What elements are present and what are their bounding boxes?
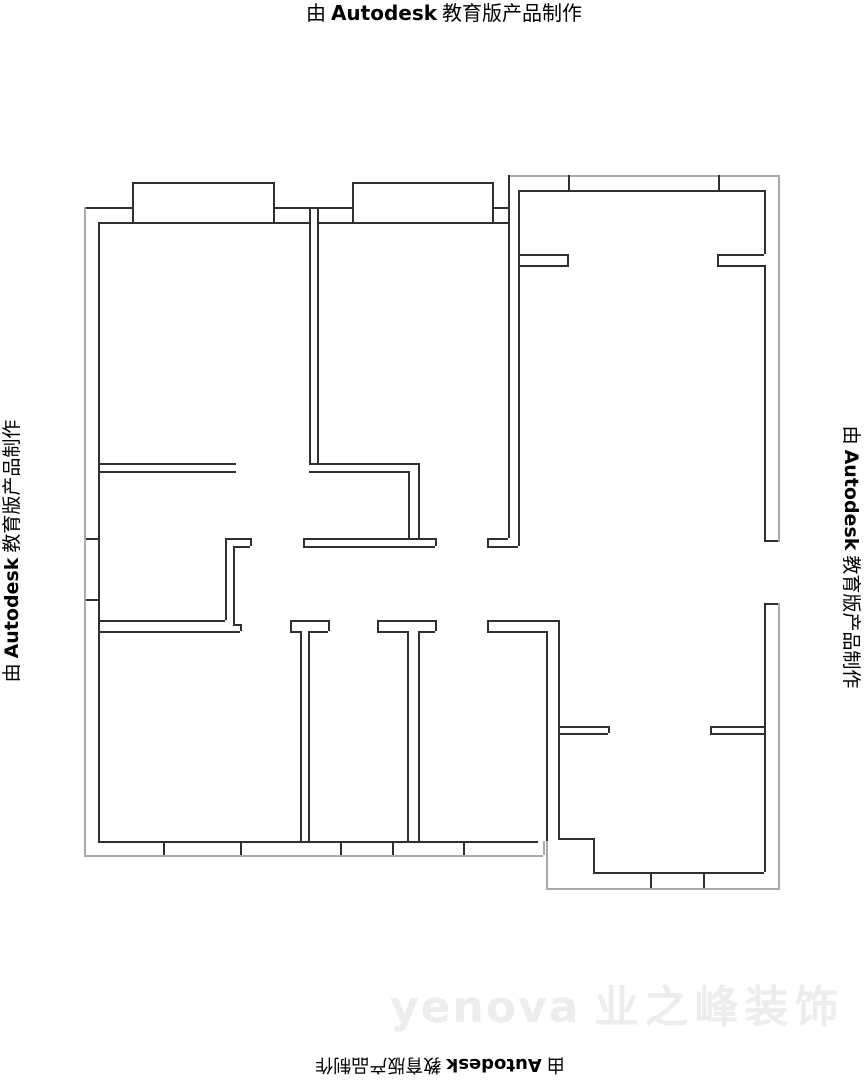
wall-segment: [290, 620, 328, 622]
wall-segment: [233, 546, 235, 624]
wall-segment: [593, 838, 595, 872]
wall-segment: [309, 471, 408, 473]
wall-segment: [546, 631, 548, 841]
wall-segment: [764, 603, 766, 872]
wall-segment: [132, 182, 134, 222]
wall-segment: [303, 546, 435, 548]
wall-segment: [418, 463, 420, 538]
outer-wall-segment: [84, 207, 86, 857]
wall-segment: [487, 620, 558, 622]
wall-segment: [487, 538, 508, 540]
wall-segment: [487, 546, 518, 548]
wall-segment: [487, 538, 489, 546]
wall-segment: [377, 620, 435, 622]
wall-segment: [240, 841, 242, 855]
wall-segment: [710, 726, 764, 728]
wall-segment: [518, 190, 520, 546]
wall-segment: [98, 620, 225, 622]
wall-segment: [98, 631, 240, 633]
wall-segment: [328, 620, 330, 631]
outer-wall-segment: [778, 603, 780, 888]
wall-segment: [418, 631, 435, 633]
wall-segment: [703, 872, 705, 888]
wall-segment: [240, 624, 242, 631]
wall-segment: [98, 222, 100, 841]
wall-segment: [392, 841, 394, 855]
wall-segment: [487, 631, 546, 633]
wall-segment: [764, 265, 766, 540]
wall-segment: [309, 463, 418, 465]
wall-segment: [233, 546, 250, 548]
outer-wall-segment: [543, 841, 545, 855]
wall-segment: [463, 841, 465, 855]
floorplan-canvas: [0, 0, 864, 1080]
wall-segment: [225, 538, 250, 540]
ghost-logo-latin: yenova: [390, 982, 580, 1033]
wall-segment: [764, 540, 778, 542]
wall-segment: [308, 631, 310, 841]
wall-segment: [710, 726, 712, 733]
wall-segment: [518, 254, 567, 256]
wall-segment: [377, 620, 379, 631]
wall-segment: [717, 265, 764, 267]
wall-segment: [518, 265, 567, 267]
wall-segment: [340, 841, 342, 855]
wall-segment: [492, 207, 508, 209]
wall-segment: [225, 538, 227, 620]
wall-segment: [98, 471, 236, 473]
wall-segment: [650, 872, 652, 888]
wall-segment: [309, 207, 311, 463]
wall-segment: [98, 222, 309, 224]
wall-segment: [508, 175, 510, 538]
outer-wall-segment: [778, 175, 780, 542]
wall-segment: [84, 207, 132, 209]
wall-segment: [303, 538, 305, 546]
outer-wall-segment: [546, 841, 548, 888]
wall-segment: [558, 838, 593, 840]
wall-segment: [84, 599, 98, 601]
wall-segment: [352, 182, 354, 222]
outer-wall-segment: [84, 855, 543, 857]
wall-segment: [518, 190, 764, 192]
ghost-logo: yenova业之峰装饰: [390, 978, 860, 1038]
wall-segment: [435, 538, 437, 546]
wall-segment: [435, 620, 437, 631]
wall-segment: [764, 603, 778, 605]
wall-segment: [717, 254, 719, 267]
wall-segment: [407, 631, 409, 841]
wall-segment: [317, 207, 319, 463]
wall-segment: [132, 182, 273, 184]
outer-wall-segment: [508, 175, 780, 177]
wall-segment: [317, 222, 508, 224]
wall-segment: [290, 620, 292, 631]
wall-segment: [250, 538, 252, 546]
wall-segment: [98, 463, 236, 465]
wall-segment: [567, 254, 569, 267]
wall-segment: [710, 733, 764, 735]
wall-segment: [408, 471, 410, 538]
wall-segment: [377, 631, 407, 633]
wall-segment: [352, 182, 492, 184]
wall-segment: [300, 631, 302, 841]
wall-segment: [558, 733, 608, 735]
wall-segment: [303, 538, 435, 540]
ghost-logo-cjk: 业之峰装饰: [594, 982, 844, 1033]
wall-segment: [308, 631, 328, 633]
wall-segment: [558, 726, 608, 728]
outer-wall-segment: [546, 888, 780, 890]
wall-segment: [492, 182, 494, 222]
wall-segment: [233, 624, 240, 626]
wall-segment: [568, 175, 570, 190]
wall-segment: [608, 726, 610, 733]
wall-segment: [764, 190, 766, 254]
wall-segment: [718, 175, 720, 190]
wall-segment: [558, 620, 560, 838]
wall-segment: [273, 182, 275, 222]
wall-segment: [163, 841, 165, 855]
wall-segment: [290, 631, 300, 633]
wall-segment: [717, 254, 764, 256]
wall-segment: [273, 207, 352, 209]
wall-segment: [593, 872, 764, 874]
wall-segment: [487, 620, 489, 631]
wall-segment: [84, 538, 98, 540]
wall-segment: [418, 631, 420, 841]
